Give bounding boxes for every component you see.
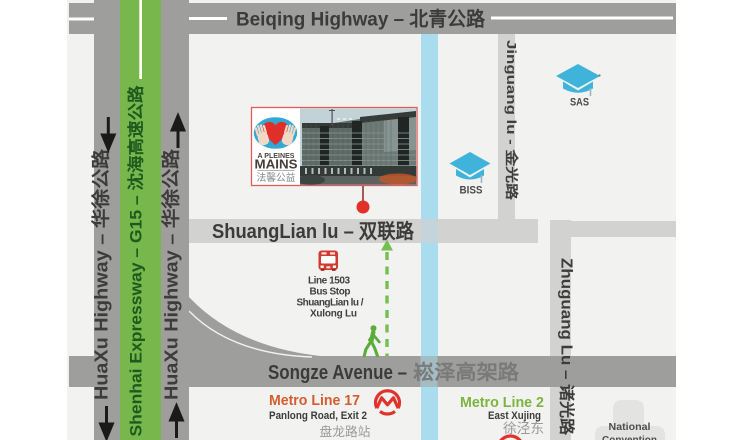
- svg-text:MAINS: MAINS: [255, 157, 298, 172]
- svg-text:Line 1503: Line 1503: [308, 276, 350, 287]
- svg-text:ShuangLian lu /: ShuangLian lu /: [297, 298, 364, 309]
- svg-text:BISS: BISS: [460, 185, 483, 197]
- svg-text:崧泽高架路: 崧泽高架路: [413, 360, 520, 384]
- svg-text:Shenhai Expressway – G15 – 沈海高: Shenhai Expressway – G15 – 沈海高速公路: [126, 85, 146, 437]
- svg-text:Songze Avenue –: Songze Avenue –: [268, 362, 407, 384]
- svg-text:National: National: [609, 421, 651, 433]
- svg-text:SAS: SAS: [570, 97, 589, 109]
- svg-text:ShuangLian lu – 双联路: ShuangLian lu – 双联路: [212, 219, 415, 243]
- svg-text:盘龙路站: 盘龙路站: [320, 424, 371, 439]
- svg-text:徐泾东: 徐泾东: [503, 421, 544, 436]
- svg-text:HuaXu Highway – 华徐公路: HuaXu Highway – 华徐公路: [91, 148, 112, 400]
- svg-text:法馨公益: 法馨公益: [257, 171, 296, 184]
- svg-text:Jinguang lu - 金光路: Jinguang lu - 金光路: [504, 40, 519, 201]
- svg-text:Metro Line 2: Metro Line 2: [460, 395, 544, 411]
- svg-text:Metro Line 17: Metro Line 17: [269, 393, 360, 409]
- svg-text:Convention: Convention: [602, 434, 657, 440]
- svg-text:Bus Stop: Bus Stop: [310, 287, 351, 298]
- svg-text:Zhuguang Lu – 诸光路: Zhuguang Lu – 诸光路: [558, 258, 577, 436]
- svg-text:Beiqing Highway – 北青公路: Beiqing Highway – 北青公路: [236, 8, 485, 31]
- svg-text:HuaXu Highway – 华徐公路: HuaXu Highway – 华徐公路: [161, 148, 182, 400]
- svg-text:Panlong Road, Exit 2: Panlong Road, Exit 2: [269, 410, 367, 422]
- svg-text:Xulong Lu: Xulong Lu: [310, 309, 357, 320]
